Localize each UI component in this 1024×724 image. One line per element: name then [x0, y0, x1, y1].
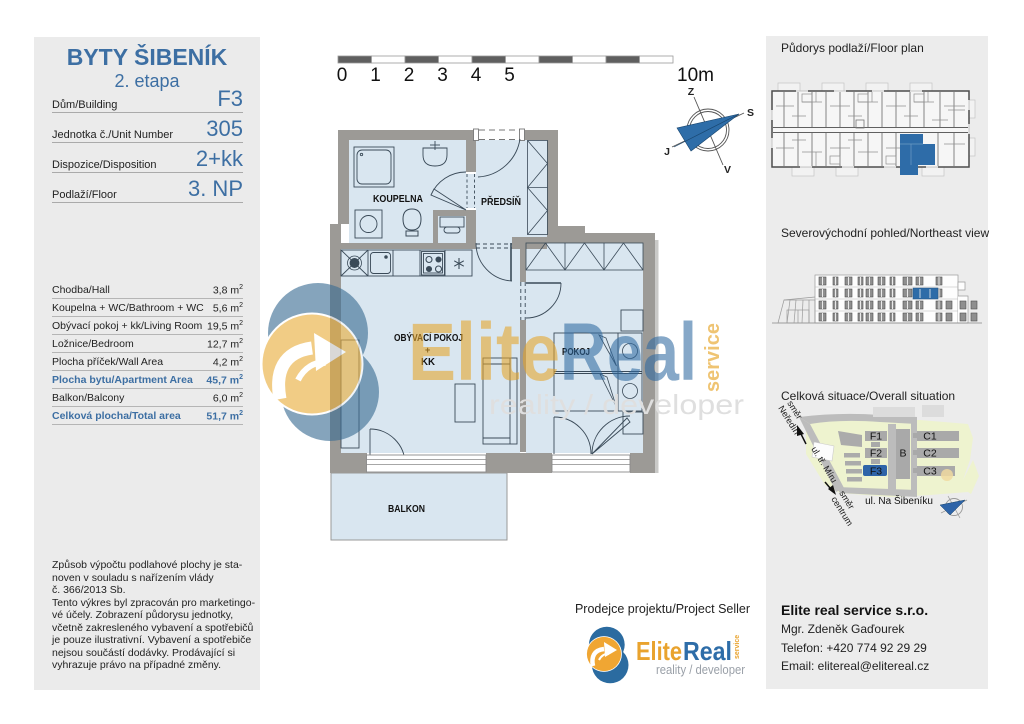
svg-text:F1: F1	[870, 431, 882, 443]
svg-text:B: B	[899, 448, 906, 460]
svg-text:Z: Z	[688, 86, 695, 98]
svg-text:V: V	[724, 164, 731, 176]
svg-text:service: service	[734, 635, 741, 659]
svg-text:KOUPELNA: KOUPELNA	[373, 194, 423, 205]
svg-text:ul. Na Šibeníku: ul. Na Šibeníku	[865, 494, 933, 507]
svg-text:F3: F3	[870, 466, 882, 478]
svg-text:0: 0	[337, 65, 348, 85]
svg-text:reality / developer: reality / developer	[656, 663, 745, 677]
svg-text:PŘEDSÍŇ: PŘEDSÍŇ	[481, 195, 521, 208]
svg-text:C3: C3	[923, 466, 937, 478]
svg-text:1: 1	[370, 65, 381, 85]
svg-text:service: service	[702, 323, 724, 392]
svg-text:2: 2	[404, 65, 415, 85]
svg-text:KK: KK	[421, 357, 436, 368]
svg-text:C1: C1	[923, 431, 937, 443]
svg-text:S: S	[747, 107, 754, 119]
svg-text:OBÝVACÍ POKOJ: OBÝVACÍ POKOJ	[394, 331, 463, 344]
svg-text:5: 5	[504, 65, 515, 85]
svg-text:BALKON: BALKON	[388, 504, 425, 515]
svg-text:Elite: Elite	[636, 636, 682, 666]
svg-text:C2: C2	[923, 448, 937, 460]
svg-text:+: +	[425, 345, 430, 355]
svg-text:F2: F2	[870, 448, 882, 460]
svg-text:4: 4	[471, 65, 482, 85]
svg-text:3: 3	[437, 65, 448, 85]
svg-text:POKOJ: POKOJ	[562, 347, 590, 358]
svg-text:Real: Real	[683, 636, 732, 666]
